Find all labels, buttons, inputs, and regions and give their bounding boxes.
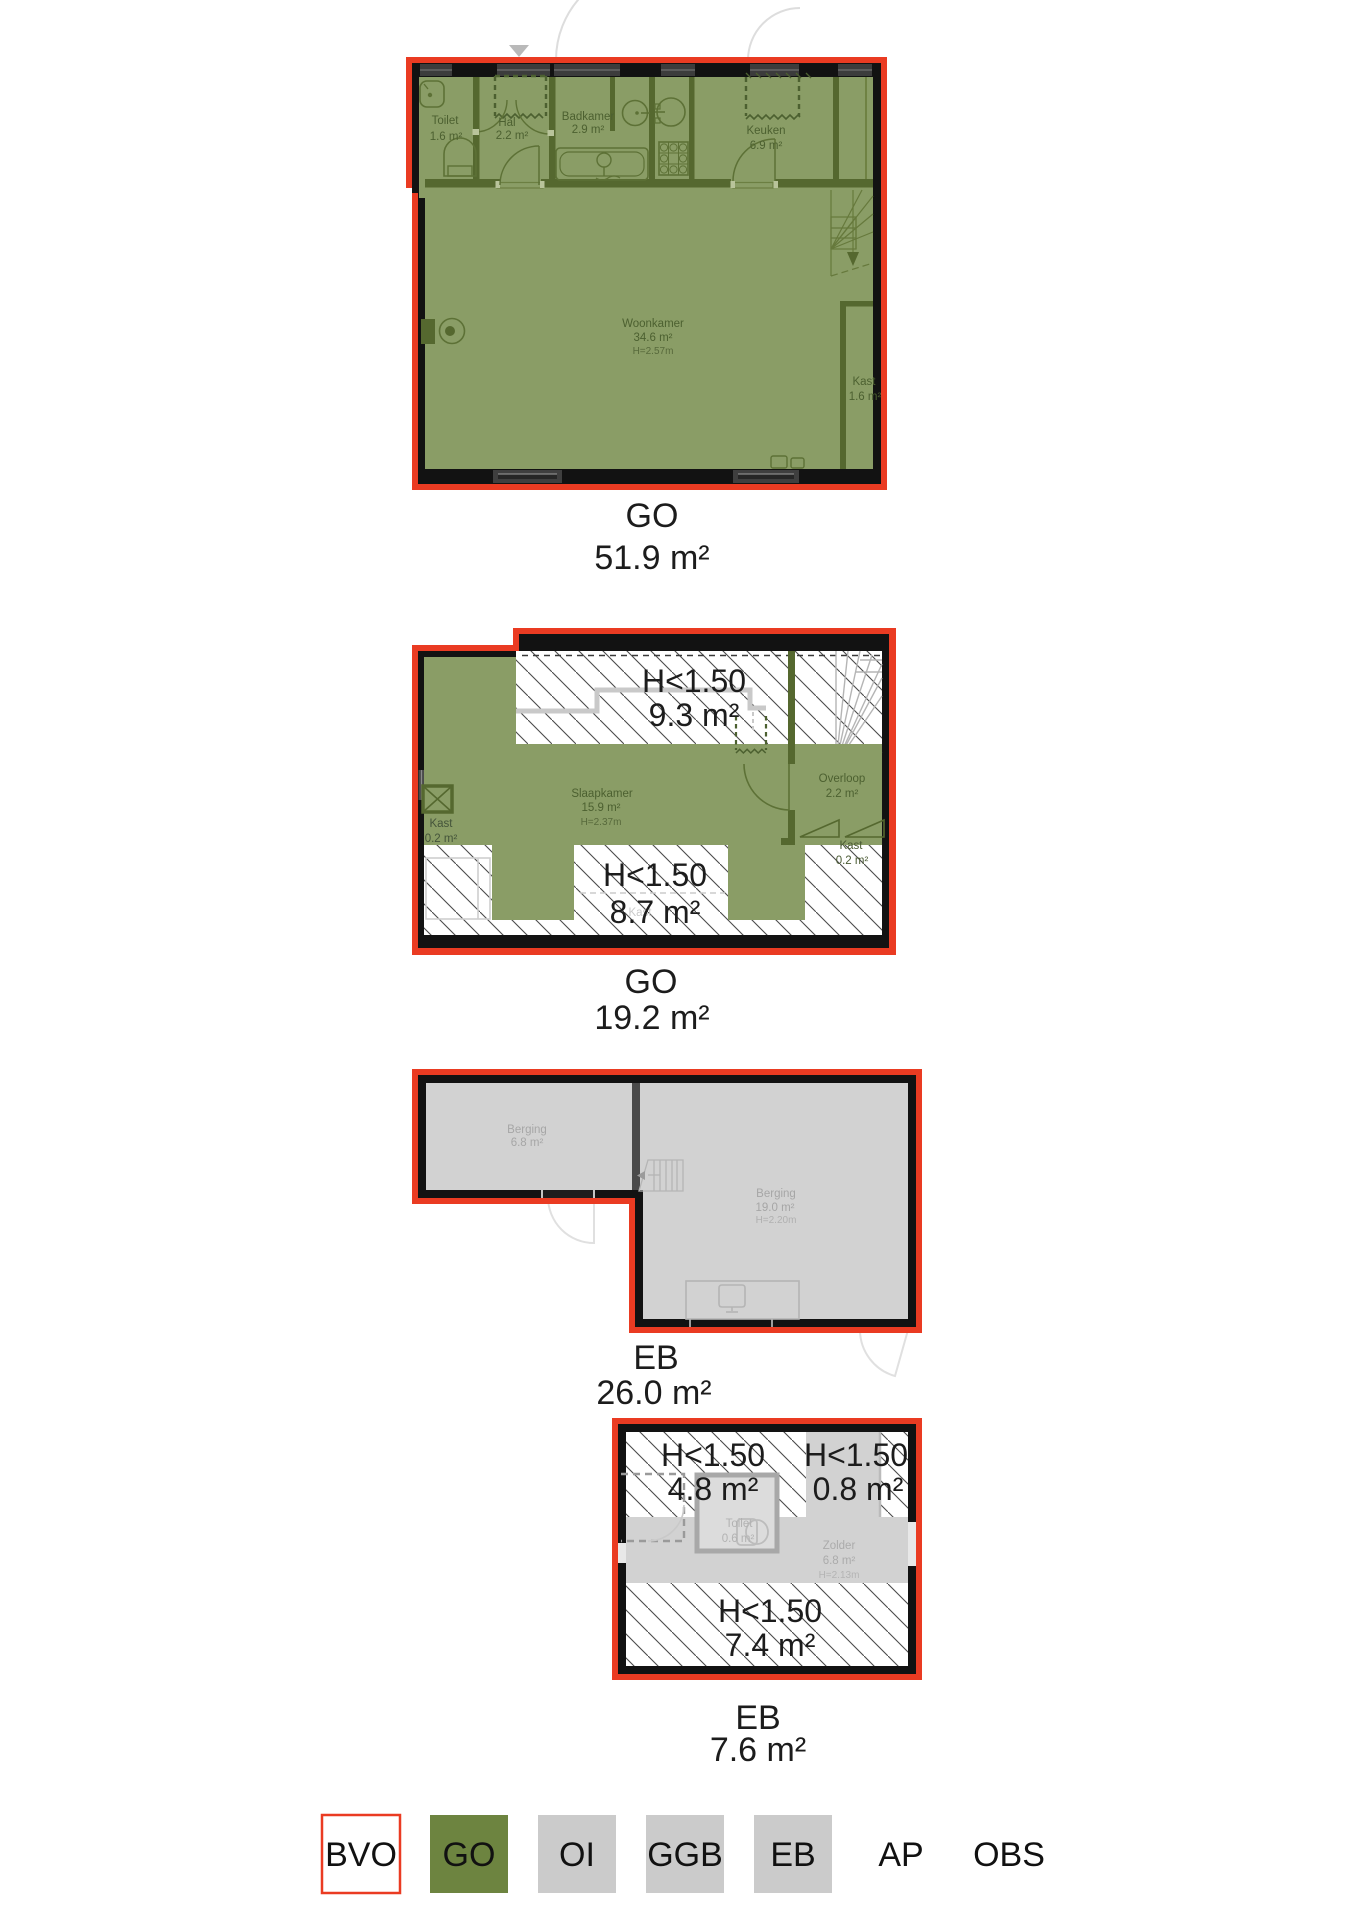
svg-text:7.6 m²: 7.6 m² [710, 1731, 806, 1769]
svg-text:EB: EB [633, 1339, 678, 1377]
svg-text:Kast: Kast [429, 818, 453, 830]
svg-text:Berging: Berging [756, 1188, 796, 1200]
svg-text:8.7 m²: 8.7 m² [610, 894, 701, 930]
svg-text:Toilet: Toilet [726, 1518, 754, 1530]
svg-text:BVO: BVO [325, 1836, 397, 1874]
svg-text:6.8 m²: 6.8 m² [511, 1137, 544, 1149]
svg-text:GO: GO [625, 963, 678, 1001]
svg-text:19.0 m²: 19.0 m² [756, 1202, 795, 1214]
svg-text:OI: OI [559, 1836, 595, 1874]
svg-text:6.9 m²: 6.9 m² [750, 140, 783, 152]
svg-text:2.2 m²: 2.2 m² [826, 788, 859, 800]
svg-text:Kast: Kast [839, 840, 863, 852]
svg-text:6.8 m²: 6.8 m² [823, 1555, 856, 1567]
svg-text:GO: GO [443, 1836, 496, 1874]
svg-text:Hal: Hal [498, 117, 515, 129]
svg-text:H<1.50: H<1.50 [603, 857, 707, 893]
svg-text:Keuken: Keuken [746, 125, 785, 137]
svg-text:GO: GO [626, 497, 679, 535]
svg-text:H<1.50: H<1.50 [804, 1437, 908, 1473]
svg-text:H=2.57m: H=2.57m [633, 346, 674, 357]
svg-text:Overloop: Overloop [819, 773, 866, 785]
svg-text:H<1.50: H<1.50 [661, 1437, 765, 1473]
svg-text:9.3 m²: 9.3 m² [649, 697, 740, 733]
svg-text:H=2.13m: H=2.13m [819, 1570, 860, 1581]
svg-text:Badkamer: Badkamer [562, 111, 615, 123]
svg-text:1.6 m²: 1.6 m² [430, 131, 463, 143]
svg-text:2.9 m²: 2.9 m² [572, 124, 605, 136]
svg-text:Woonkamer: Woonkamer [622, 318, 684, 330]
svg-text:OBS: OBS [973, 1836, 1045, 1874]
svg-text:19.2 m²: 19.2 m² [594, 999, 709, 1037]
svg-text:2.2 m²: 2.2 m² [496, 130, 529, 142]
svg-text:GGB: GGB [647, 1836, 723, 1874]
svg-text:1.6 m²: 1.6 m² [849, 391, 882, 403]
svg-text:Zolder: Zolder [823, 1540, 856, 1552]
svg-text:H<1.50: H<1.50 [642, 663, 746, 699]
svg-text:H<1.50: H<1.50 [718, 1593, 822, 1629]
svg-text:AP: AP [878, 1836, 923, 1874]
svg-text:0.8 m²: 0.8 m² [813, 1471, 904, 1507]
svg-text:H=2.20m: H=2.20m [756, 1215, 797, 1226]
svg-text:51.9 m²: 51.9 m² [594, 539, 709, 577]
svg-text:Kast: Kast [852, 376, 876, 388]
svg-text:7.4 m²: 7.4 m² [725, 1627, 816, 1663]
svg-text:15.9 m²: 15.9 m² [582, 802, 621, 814]
svg-text:4.8 m²: 4.8 m² [668, 1471, 759, 1507]
svg-text:Slaapkamer: Slaapkamer [571, 788, 633, 800]
svg-text:EB: EB [770, 1836, 815, 1874]
svg-text:26.0 m²: 26.0 m² [596, 1374, 711, 1412]
svg-text:0.6 m²: 0.6 m² [722, 1533, 755, 1545]
svg-text:Toilet: Toilet [432, 115, 460, 127]
svg-text:Berging: Berging [507, 1124, 547, 1136]
svg-text:H=2.37m: H=2.37m [581, 817, 622, 828]
svg-text:0.2 m²: 0.2 m² [836, 855, 869, 867]
svg-text:34.6 m²: 34.6 m² [634, 332, 673, 344]
svg-text:0.2 m²: 0.2 m² [425, 833, 458, 845]
